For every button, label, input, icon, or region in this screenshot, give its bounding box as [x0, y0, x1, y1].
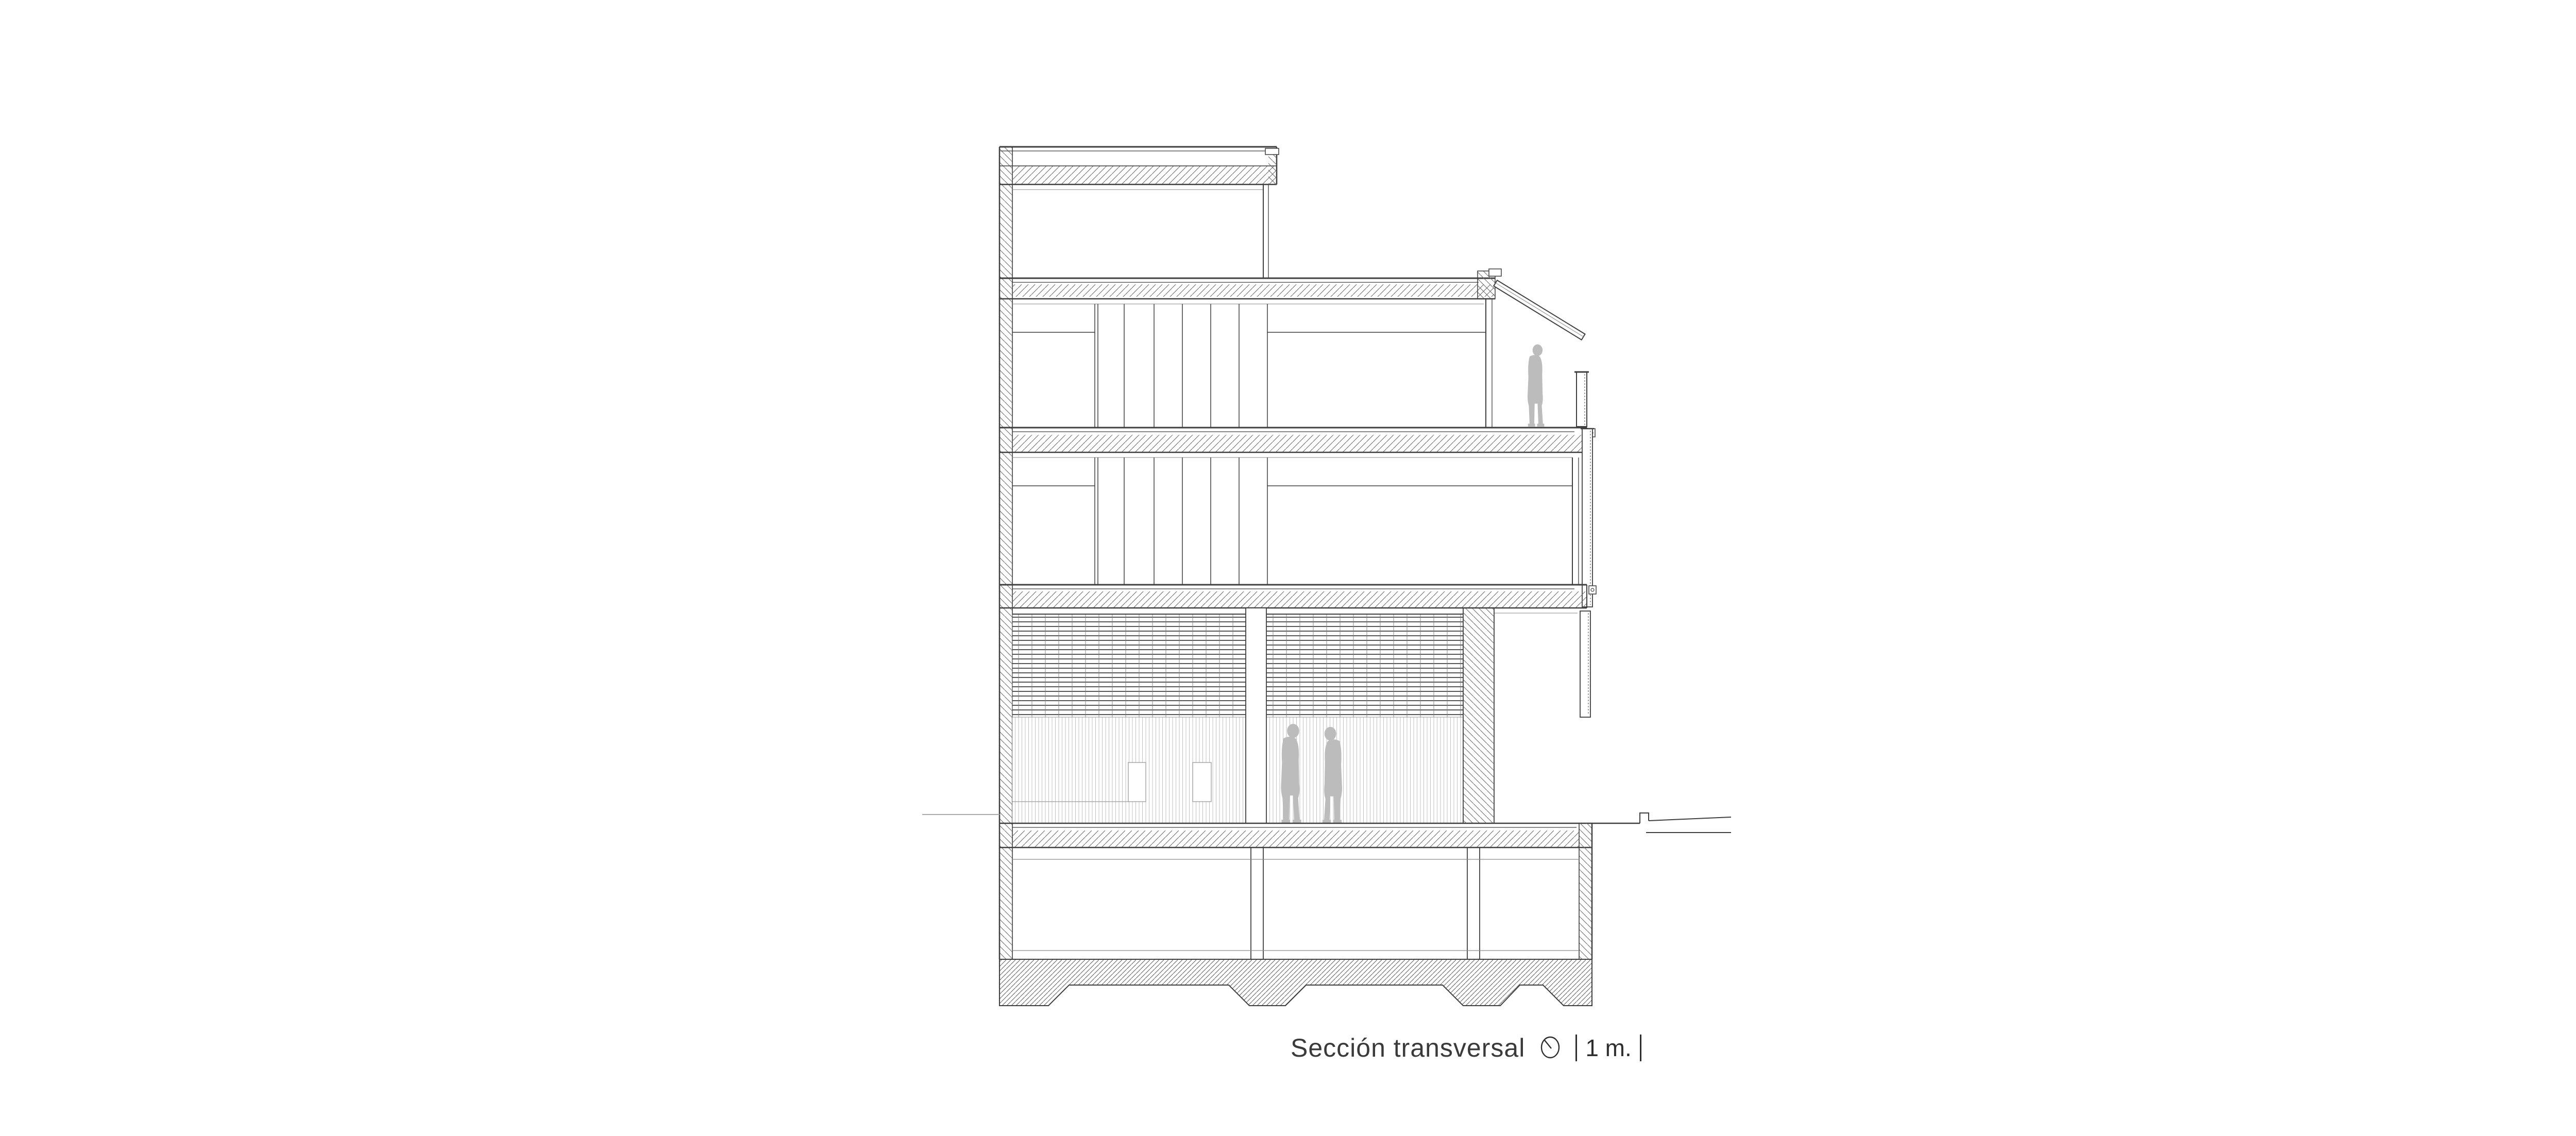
center-pier [1246, 608, 1266, 823]
basement-columns [1251, 847, 1480, 959]
facade-screen-panel-lower [1580, 611, 1590, 717]
section-drawing [0, 0, 2576, 1136]
facade-glazing [1572, 457, 1579, 585]
facade-screen-panel-upper [1581, 429, 1594, 607]
basement-right-wall [1579, 823, 1592, 959]
terrace-louver [1494, 280, 1585, 340]
stair-balustrade-lines [1095, 304, 1267, 428]
terrace-railing [1574, 372, 1589, 427]
slab-edge-bracket [1589, 586, 1596, 594]
left-wall [999, 147, 1012, 959]
third-floor-roof-slab [999, 269, 1501, 304]
drawing-title: Sección transversal [1291, 1033, 1525, 1063]
scale-bar: 1 m. [1575, 1035, 1641, 1061]
lattice-screen-left [1012, 614, 1246, 717]
north-circle-icon [1538, 1034, 1562, 1062]
lattice-screen-right [1266, 614, 1463, 717]
right-pier-cut [1463, 608, 1494, 823]
penthouse-window-wall [1263, 184, 1268, 278]
foundation-footings [999, 959, 1592, 1006]
stair-balustrade-lines [1095, 457, 1267, 585]
terrace-person-silhouette [1528, 344, 1544, 427]
third-floor-slab [999, 428, 1587, 457]
caption: Sección transversal 1 m. [1291, 1033, 1641, 1063]
second-floor-slab [999, 585, 1596, 613]
slatted-wall [1012, 717, 1463, 823]
terrace-window-wall [1486, 299, 1492, 428]
sidewalk-curb [1640, 813, 1731, 833]
second-floor [1012, 429, 1594, 607]
penthouse-roof [999, 147, 1279, 190]
street-ground-line [1649, 817, 1731, 821]
ground-floor [1012, 608, 1590, 823]
third-floor [1012, 299, 1595, 437]
